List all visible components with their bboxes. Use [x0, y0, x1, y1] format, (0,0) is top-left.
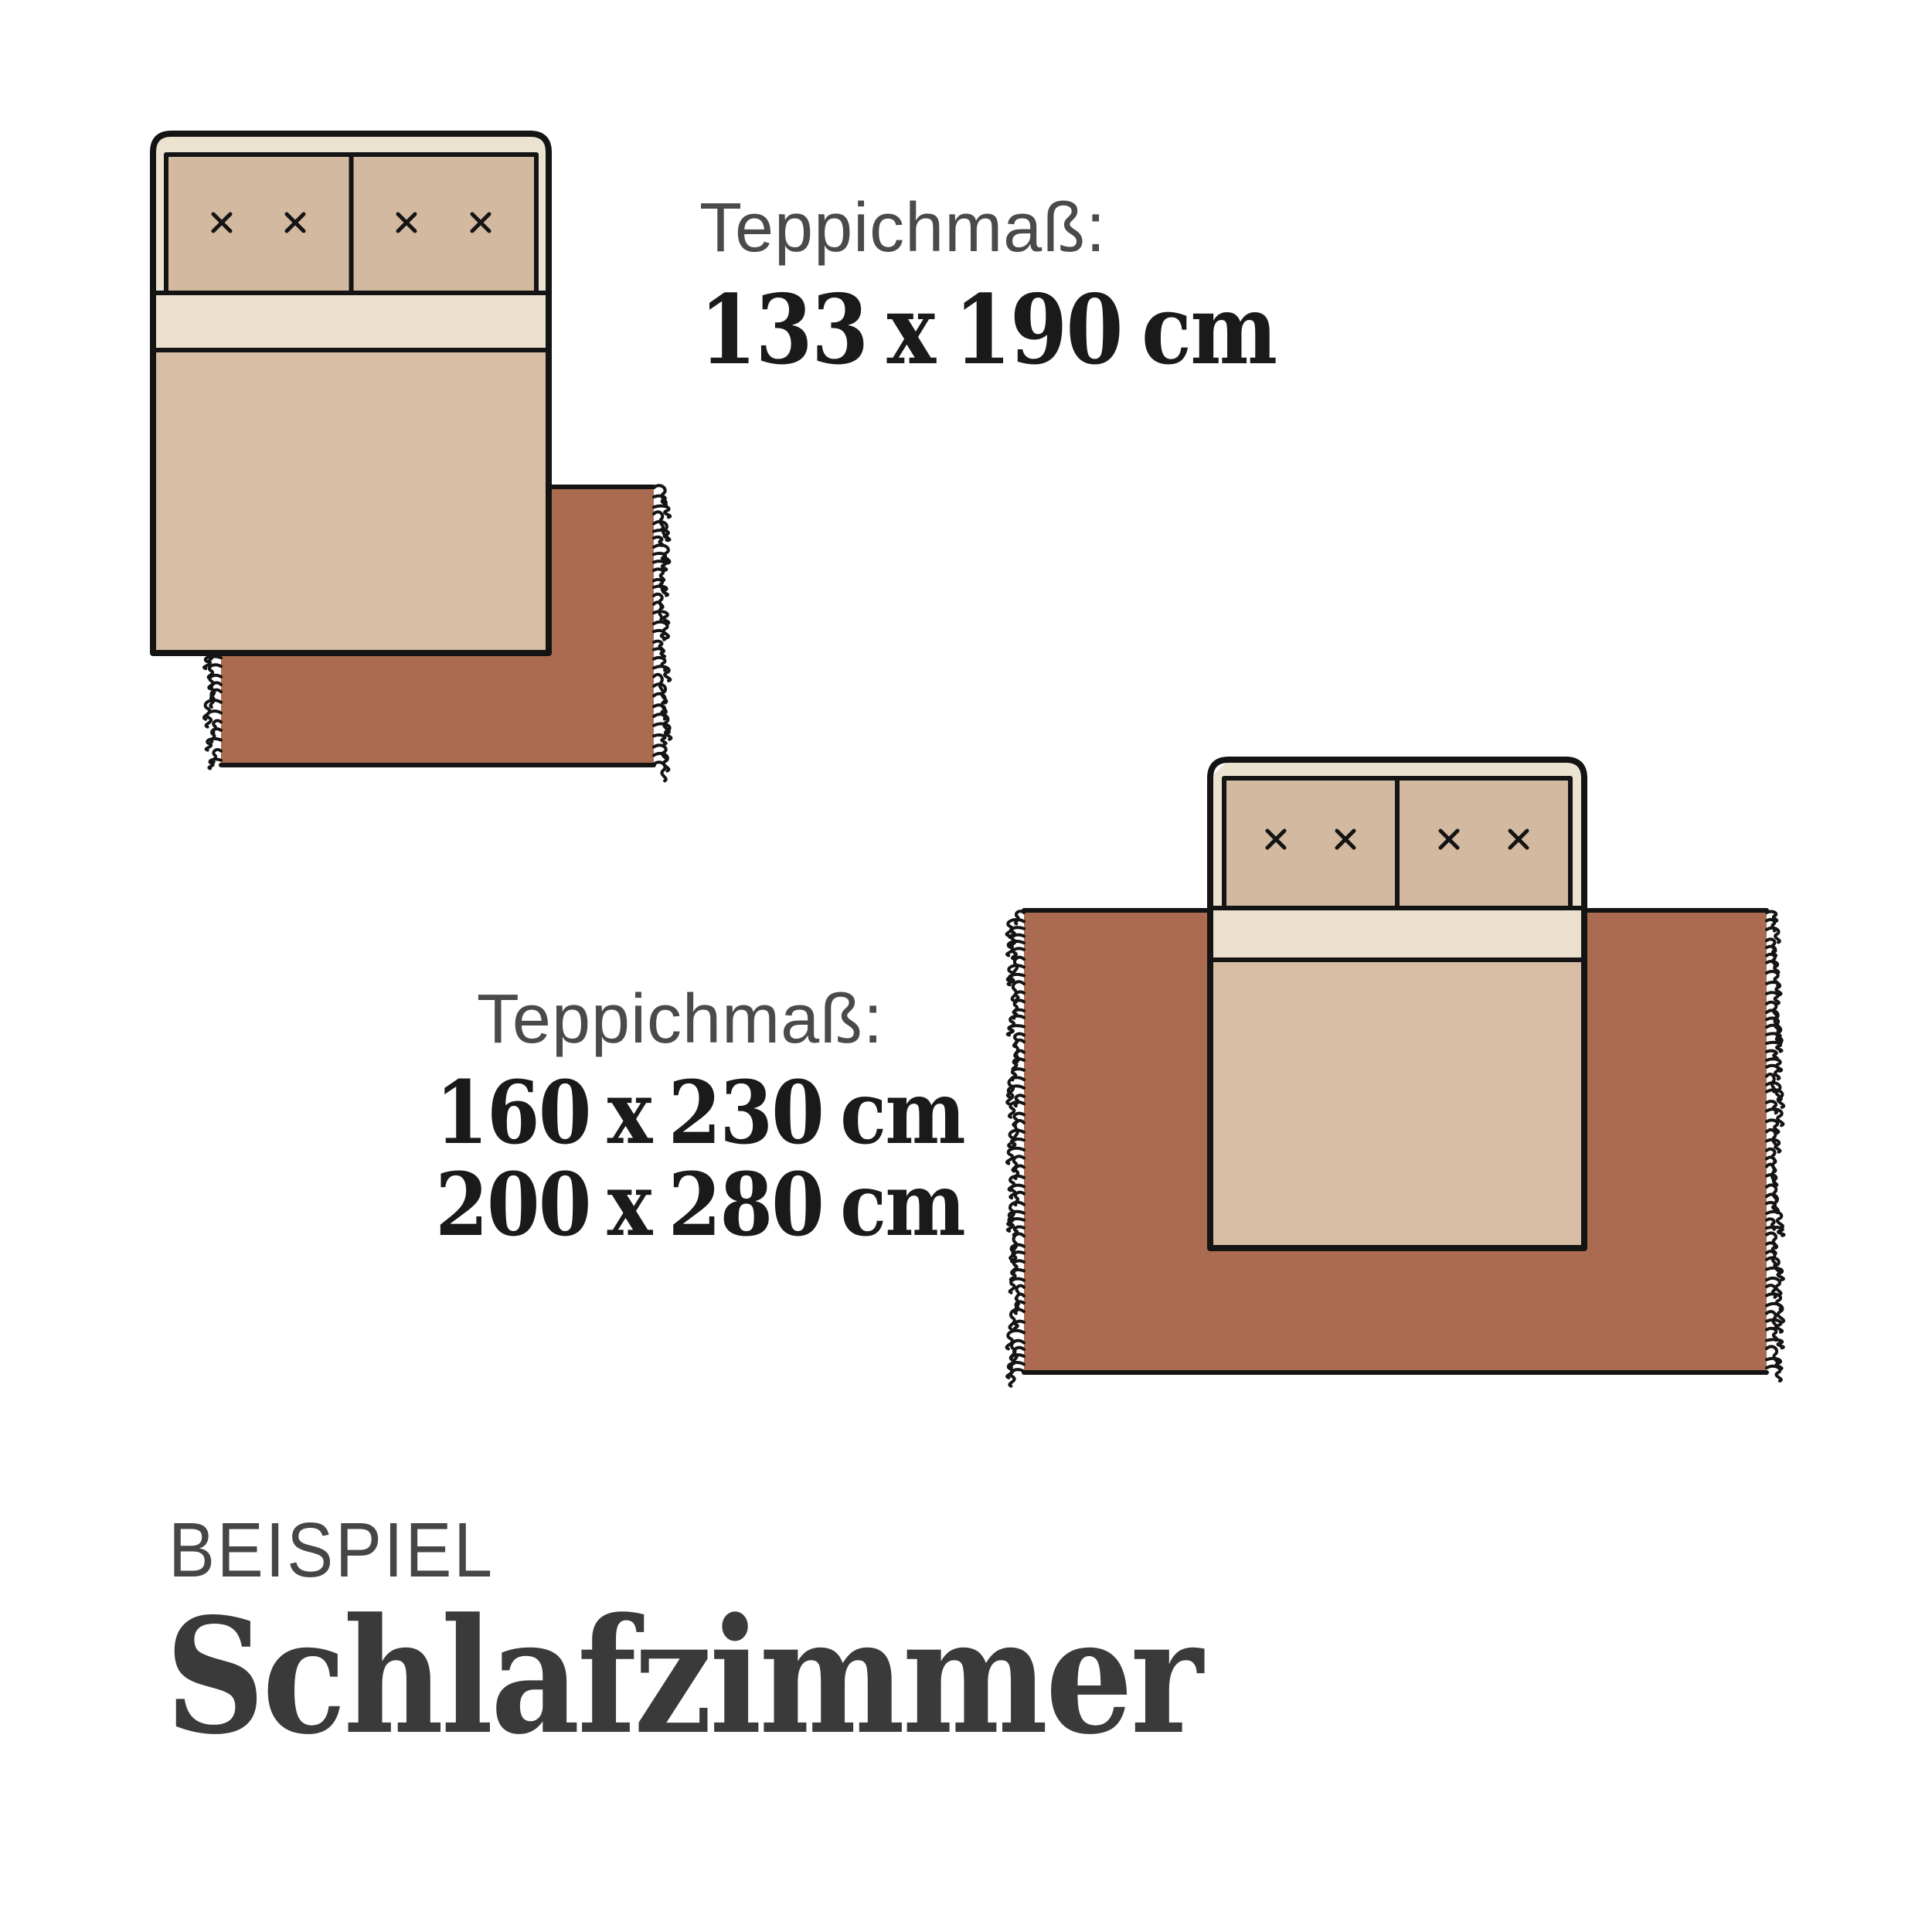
rug-size-title: Teppichmaß:: [402, 985, 958, 1054]
rug-fringe-right-icon: [1767, 912, 1784, 1381]
rug-size-title: Teppichmaß:: [699, 193, 1370, 263]
rug-size-value: 133 x 190 cm: [699, 283, 1276, 379]
rug-size-label-large: Teppichmaß: 160 x 230 cm 200 x 280 cm: [402, 985, 958, 1251]
illustration-bed-large-rug: [1005, 742, 1801, 1391]
page-title: Schlafzimmer: [165, 1589, 1200, 1767]
rug-fringe-left-icon: [1007, 911, 1024, 1386]
rug-fringe-right-icon: [654, 485, 671, 781]
rug-size-value: 200 x 280 cm: [435, 1160, 925, 1252]
bed-large: [1210, 760, 1584, 1248]
rug-size-value: 160 x 230 cm: [435, 1068, 925, 1160]
bed-small-duvet: [156, 350, 546, 650]
bed-rug-drawing-large: [1005, 742, 1801, 1391]
bed-small: [153, 134, 549, 653]
example-eyebrow: BEISPIEL: [168, 1512, 495, 1589]
rug-size-label-small: Teppichmaß: 133 x 190 cm: [699, 193, 1370, 379]
bed-large-sheet-band: [1213, 908, 1581, 960]
bed-rug-drawing-small: [139, 124, 680, 781]
rug-size-infographic: Teppichmaß: 133 x 190 cm T: [0, 0, 1932, 1932]
rug-size-values: 160 x 230 cm 200 x 280 cm: [402, 1068, 958, 1251]
bed-large-duvet: [1213, 960, 1581, 1245]
illustration-bed-small-rug: [139, 124, 680, 781]
bed-small-sheet-band: [156, 293, 546, 350]
